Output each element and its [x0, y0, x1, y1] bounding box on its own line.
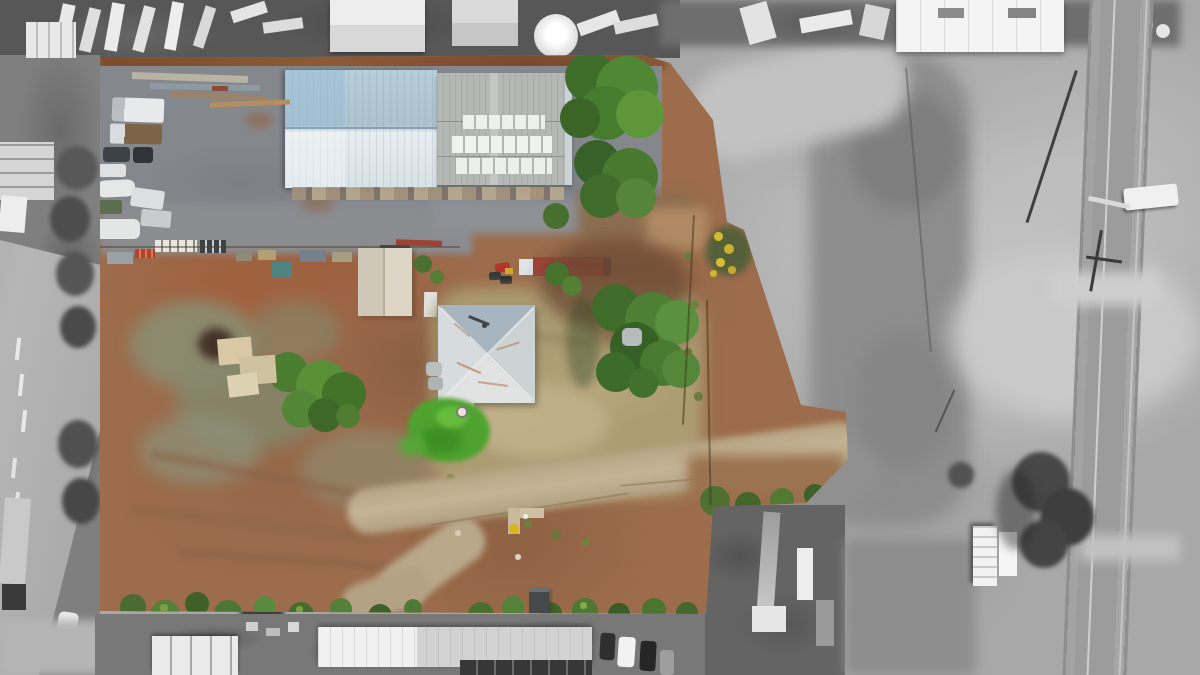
white-dot-item	[515, 554, 521, 560]
scrub-patch	[250, 300, 340, 360]
small-building	[26, 22, 76, 58]
house-hip-roof	[438, 305, 535, 403]
lawn-dark	[420, 426, 462, 454]
warehouse-ridge	[285, 127, 437, 129]
pine-tree	[336, 404, 360, 428]
depot-shed	[330, 0, 425, 52]
white-building-north	[896, 0, 1064, 52]
container-stack	[0, 142, 54, 200]
garden-tank	[622, 328, 642, 346]
yellow-flowering-bush	[728, 266, 736, 274]
building-door	[1008, 8, 1036, 18]
parked-car	[660, 650, 674, 675]
parked-van-white	[99, 164, 126, 177]
tree-shadow	[996, 470, 1036, 550]
materials-stack	[212, 86, 228, 91]
warehouse-roof-quadrant	[285, 70, 345, 188]
tree-canopy	[616, 90, 664, 138]
chimney	[482, 323, 487, 328]
parked-truck-gray	[140, 209, 171, 229]
yellow-flowering-bush	[710, 270, 717, 277]
roadside-tree	[56, 252, 94, 296]
truck-cab-white	[519, 259, 533, 275]
yard-gravel	[845, 540, 975, 675]
parked-car	[617, 636, 636, 667]
white-dot-item	[455, 530, 461, 536]
yard-truck	[816, 600, 834, 646]
yard-truck	[797, 548, 813, 600]
well-cover	[456, 406, 468, 418]
weed-clump	[582, 538, 590, 546]
roadside-tree	[56, 146, 98, 190]
building-door	[938, 8, 964, 18]
fence-line	[100, 246, 460, 248]
parked-truck-tray	[110, 124, 162, 145]
parked-car-dark	[133, 147, 153, 163]
scrub-blotch	[855, 330, 955, 470]
boat-trailer	[97, 179, 136, 198]
umbrella-yellow	[509, 524, 519, 534]
warehouse-clutter-strip	[292, 187, 564, 200]
cream-shed	[358, 248, 412, 316]
yellow-flowering-bush	[714, 232, 723, 241]
yellow-flowering-bush	[716, 258, 725, 267]
tree-canopy	[662, 350, 700, 388]
crane-cab	[752, 606, 786, 632]
yard-item	[332, 252, 352, 262]
shrub	[430, 270, 444, 284]
dark-tree	[948, 462, 974, 488]
yard-item	[300, 250, 326, 262]
caravan-white	[95, 219, 140, 239]
parked-car	[639, 641, 657, 672]
trailer-green	[97, 200, 122, 214]
yard-clutter	[246, 622, 258, 631]
roadside-tree	[60, 306, 96, 348]
weed-clump	[524, 520, 532, 528]
south-building	[152, 636, 238, 675]
rust-stain	[246, 112, 272, 128]
yard-item	[236, 252, 252, 261]
yard-clutter	[288, 622, 299, 632]
lawn-tail	[398, 436, 426, 456]
water-tank	[426, 362, 442, 376]
machine-yellow	[505, 268, 513, 274]
truck-cab	[2, 584, 26, 610]
skylight-row	[452, 136, 552, 153]
parked-car-dark	[103, 147, 130, 162]
bush-highlight	[580, 602, 587, 609]
weed-clump	[552, 530, 561, 539]
skylight-row	[463, 115, 545, 129]
parked-car	[599, 633, 615, 661]
yellow-flowering-bush	[724, 244, 734, 254]
shrub	[414, 255, 432, 273]
parked-truck	[0, 195, 28, 233]
yard-item	[258, 250, 276, 260]
pallet-stack-red	[135, 249, 155, 258]
roadside-tree	[50, 196, 90, 242]
white-dot-item	[523, 514, 528, 519]
tree-canopy	[562, 276, 582, 296]
garden-shed-roof-edge	[529, 588, 549, 592]
cream-shed-ridge	[383, 248, 385, 316]
roadside-tree	[58, 420, 98, 468]
east-weed	[690, 300, 699, 309]
yard-clutter	[266, 628, 280, 636]
storage-tank	[534, 14, 578, 58]
east-weed	[694, 392, 703, 401]
skylight-row	[456, 158, 552, 174]
roadside-tree	[62, 478, 100, 524]
garden-shed-dark	[529, 588, 549, 615]
solar-panel-strip	[460, 660, 592, 675]
container-teal	[272, 262, 292, 278]
road-crossing-band	[1050, 272, 1160, 306]
tree-canopy	[560, 98, 600, 138]
road-crossing-band	[1080, 535, 1180, 561]
parked-truck-white	[112, 97, 165, 123]
concrete-pad	[227, 372, 259, 397]
white-containers	[973, 526, 997, 586]
bush-highlight	[296, 606, 303, 613]
bush-highlight	[160, 604, 168, 612]
roof-seam	[437, 156, 572, 157]
tree-canopy	[628, 368, 658, 398]
aerial-photo-canvas	[0, 0, 1200, 675]
yard-item	[107, 252, 133, 264]
depot-shed	[452, 0, 518, 46]
water-tank	[428, 377, 443, 390]
dirt-pale-patch	[646, 208, 708, 250]
tree-canopy	[543, 203, 569, 229]
tree-canopy	[616, 178, 656, 218]
car-dark	[500, 276, 512, 284]
dome-tank	[1156, 24, 1170, 38]
